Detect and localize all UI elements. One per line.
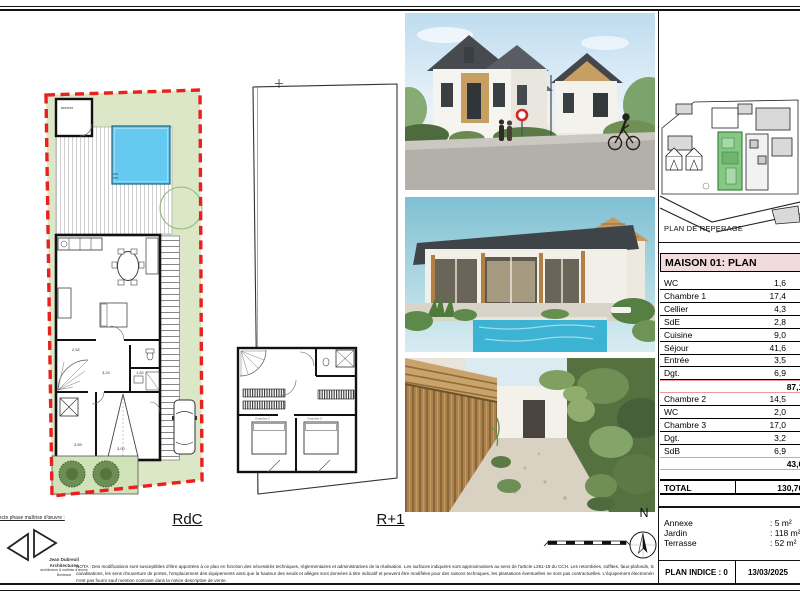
area-row: Chambre 214,5 — [660, 393, 800, 406]
car-symbol — [172, 400, 197, 454]
nota-line3: n'est pas fourni sauf mention contraire … — [76, 578, 654, 585]
plan-sheet: Annexe — [0, 0, 800, 600]
nota-line1: NOTA : Des modifications sont susceptibl… — [76, 564, 654, 571]
photo-pool-house — [405, 197, 655, 352]
photo-street-view — [405, 13, 655, 190]
phase-title: Architecte phase maîtrise d'œuvre : — [0, 515, 106, 521]
compass-rose — [630, 532, 656, 558]
svg-text:3,59: 3,59 — [74, 442, 83, 447]
area-row: Dgt.6,9 — [660, 367, 800, 380]
right-column-divider — [658, 10, 659, 585]
summary-label: Terrasse — [664, 538, 697, 548]
location-map — [660, 98, 800, 238]
area-row: Chambre 117,4 — [660, 290, 800, 303]
summary-value: : 52 m² — [770, 538, 796, 548]
svg-text:1,62: 1,62 — [136, 370, 145, 375]
nota-line2: canalisations, les sens d'ouverture de p… — [76, 571, 654, 578]
svg-text:3,00: 3,00 — [117, 446, 126, 451]
summary-label: Jardin — [664, 528, 687, 538]
plan-indice-cell: PLAN INDICE : 0 — [658, 561, 736, 584]
photo-garden-path — [405, 358, 655, 512]
r1-floor-plan: Chambre 2 Chambre 3 — [238, 79, 397, 494]
area-row: Cellier4,3 — [660, 303, 800, 316]
north-label: N — [636, 506, 652, 520]
svg-text:3,24: 3,24 — [102, 370, 111, 375]
subtotal-rdc-row: 87,1 m² — [660, 380, 800, 393]
section-divider — [658, 506, 800, 508]
summary-label: Annexe — [664, 518, 693, 528]
area-row: Cuisine9,0 — [660, 329, 800, 342]
area-row: SdE2,8 — [660, 316, 800, 329]
plan-date-cell: 13/03/2025 — [736, 561, 800, 584]
scale-bar — [544, 541, 631, 546]
svg-text:2,52: 2,52 — [72, 347, 81, 352]
area-row: Entrée3,5 — [660, 354, 800, 367]
svg-text:Chambre 3: Chambre 3 — [307, 417, 322, 421]
rdc-floor-plan: Annexe — [46, 90, 202, 496]
summary-value: : 5 m² — [770, 518, 792, 528]
subtotal-r1-row: 43,6 m² — [660, 457, 800, 470]
pool — [112, 126, 170, 184]
rdc-label: RdC — [165, 511, 210, 528]
architect-logo — [8, 530, 56, 560]
area-row: Chambre 317,0 — [660, 419, 800, 432]
map-label: PLAN DE REPERAGE — [664, 224, 743, 233]
nota-text: NOTA : Des modifications sont susceptibl… — [76, 564, 654, 585]
r1-label: R+1 — [368, 511, 413, 528]
summary-value: : 118 m² — [770, 528, 800, 538]
map-divider — [658, 242, 800, 243]
svg-text:Chambre 2: Chambre 2 — [255, 417, 270, 421]
render-pool — [473, 319, 607, 352]
table-title: MAISON 01: PLAN — [660, 253, 800, 272]
annexe-plan-label: Annexe — [61, 106, 73, 110]
annexe-outline — [56, 99, 92, 136]
area-row: WC1,6 — [660, 277, 800, 290]
area-row: Dgt.3,2 — [660, 432, 800, 445]
total-row: TOTAL 130,70 m² — [660, 479, 800, 495]
area-row: WC2,0 — [660, 406, 800, 419]
